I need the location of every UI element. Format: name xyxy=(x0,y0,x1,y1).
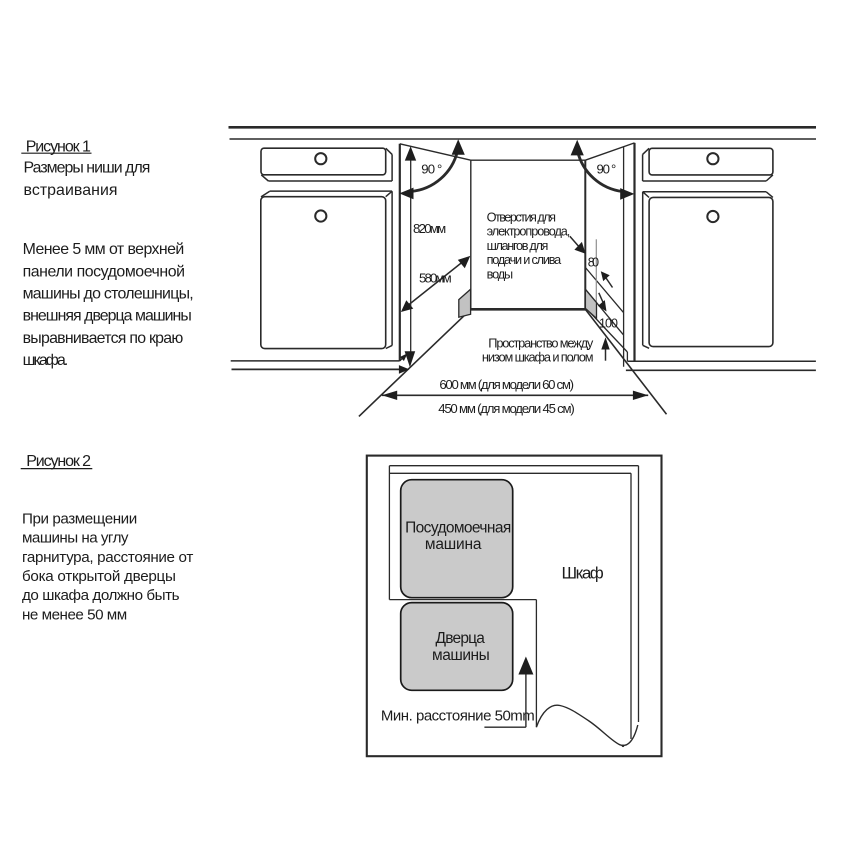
svg-text:машины: машины xyxy=(432,647,490,664)
svg-text:При размещении: При размещении xyxy=(22,511,137,528)
svg-text:Мин. расстояние 50mm: Мин. расстояние 50mm xyxy=(381,708,535,725)
svg-text:Менее 5 мм от верхней: Менее 5 мм от верхней xyxy=(23,241,185,258)
svg-text:шлангов для: шлангов для xyxy=(487,239,549,253)
svg-text:820мм: 820мм xyxy=(413,221,446,236)
svg-text:90 °: 90 ° xyxy=(597,161,617,176)
svg-text:бока открытой дверцы: бока открытой дверцы xyxy=(22,568,176,585)
svg-text:Шкаф: Шкаф xyxy=(562,564,604,583)
svg-text:машина: машина xyxy=(425,536,482,553)
svg-text:580мм: 580мм xyxy=(419,270,452,285)
svg-text:внешняя дверца машины: внешняя дверца машины xyxy=(23,308,192,325)
svg-text:воды: воды xyxy=(487,268,513,282)
svg-text:выравнивается по краю: выравнивается по краю xyxy=(23,330,184,347)
svg-text:гарнитура, расстояние от: гарнитура, расстояние от xyxy=(22,549,193,566)
svg-text:не менее 50 мм: не менее 50 мм xyxy=(22,606,127,623)
svg-text:электропровода,: электропровода, xyxy=(487,225,571,239)
svg-text:450 мм (для модели 45 см): 450 мм (для модели 45 см) xyxy=(438,401,575,416)
svg-text:панели посудомоечной: панели посудомоечной xyxy=(23,263,185,280)
svg-text:Посудомоечная: Посудомоечная xyxy=(405,520,511,537)
svg-text:машины на углу: машины на углу xyxy=(22,530,129,547)
svg-text:90 °: 90 ° xyxy=(421,161,442,176)
svg-text:Дверца: Дверца xyxy=(436,630,486,647)
svg-text:80: 80 xyxy=(588,256,599,270)
svg-text:Размеры ниши для: Размеры ниши для xyxy=(24,159,151,176)
svg-text:встраивания: встраивания xyxy=(24,182,118,199)
svg-text:подачи и слива: подачи и слива xyxy=(487,253,563,267)
svg-text:шкафа.: шкафа. xyxy=(23,352,69,369)
svg-text:Рисунок 2: Рисунок 2 xyxy=(26,453,91,470)
svg-text:100: 100 xyxy=(599,316,618,330)
svg-text:низом шкафа и полом: низом шкафа и полом xyxy=(482,349,594,364)
svg-text:Пространство между: Пространство между xyxy=(488,335,594,350)
svg-text:до шкафа должно быть: до шкафа должно быть xyxy=(22,587,180,604)
svg-text:Отверстия для: Отверстия для xyxy=(487,210,556,224)
svg-text:машины до столешницы,: машины до столешницы, xyxy=(23,286,194,303)
svg-text:600 мм (для модели 60 см): 600 мм (для модели 60 см) xyxy=(439,377,574,392)
